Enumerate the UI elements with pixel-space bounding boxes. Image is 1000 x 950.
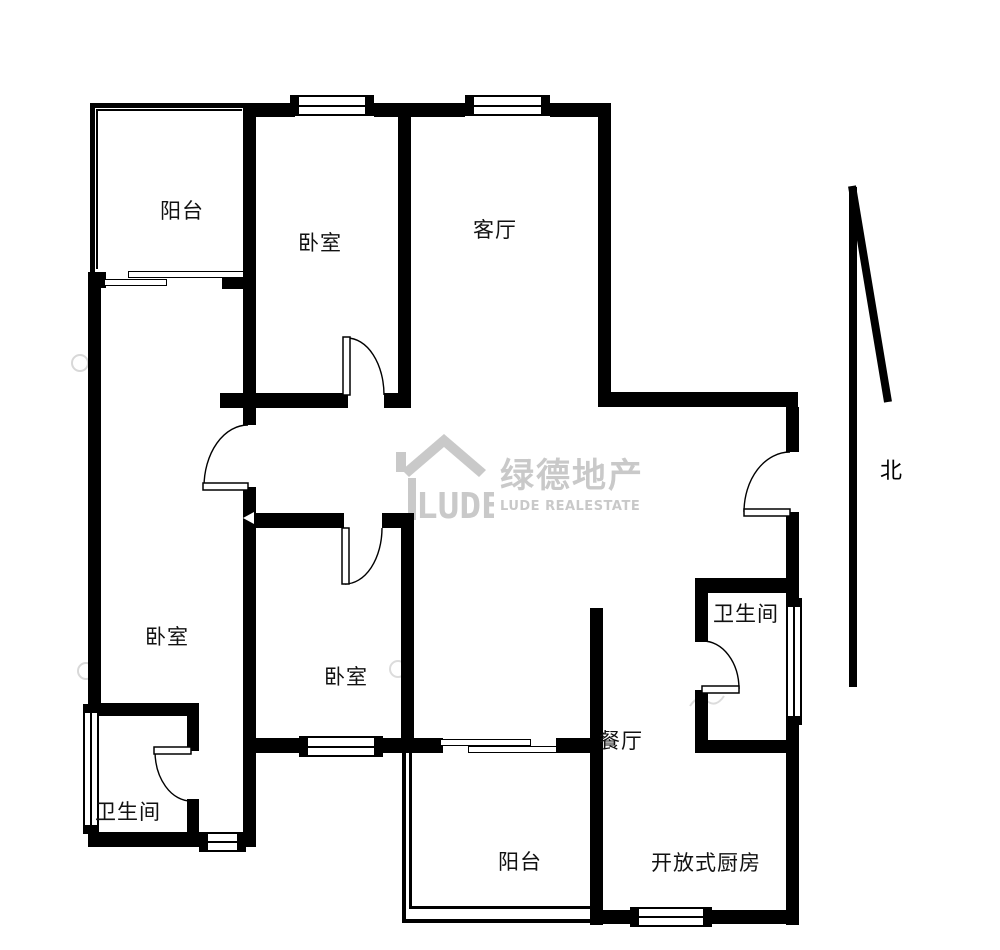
wall-segment xyxy=(380,738,443,753)
wall-segment xyxy=(88,703,199,716)
balcony-railing xyxy=(90,103,248,108)
wall-segment xyxy=(384,393,409,408)
north-arrow-icon xyxy=(852,186,888,687)
door-swing xyxy=(343,337,384,395)
wall-segment xyxy=(88,272,101,705)
wall-segment xyxy=(243,288,256,425)
wall-segment xyxy=(187,799,199,834)
house-logo-icon: LUDE xyxy=(394,430,494,525)
wall-segment xyxy=(187,703,199,751)
room-label-open-kitchen: 开放式厨房 xyxy=(651,847,761,877)
wall-segment xyxy=(709,910,799,924)
watermark-logo: LUDE 绿德地产 LUDE REALESTATE xyxy=(394,430,644,525)
watermark-company-en: LUDE REALESTATE xyxy=(500,499,644,514)
sliding-door xyxy=(440,739,531,746)
window xyxy=(786,598,802,725)
room-label-bathroom-right: 卫生间 xyxy=(713,598,779,628)
room-label-bathroom-left: 卫生间 xyxy=(95,796,161,826)
room-label-dining-room: 餐厅 xyxy=(599,725,643,755)
entry-door-swing xyxy=(744,452,790,516)
wall-segment xyxy=(243,513,256,847)
door-swing xyxy=(342,528,382,584)
wall-segment xyxy=(398,115,411,408)
room-label-bedroom-middle: 卧室 xyxy=(324,661,368,691)
wall-segment xyxy=(598,103,611,399)
wall-segment xyxy=(220,393,348,408)
wall-segment xyxy=(590,608,603,925)
balcony-railing-inner xyxy=(409,752,412,908)
window xyxy=(290,95,374,116)
watermark-text-block: 绿德地产 LUDE REALESTATE xyxy=(500,430,644,514)
watermark-logo-text: LUDE xyxy=(416,486,494,525)
window xyxy=(199,832,246,852)
wall-segment xyxy=(695,578,799,593)
room-label-balcony-bottom: 阳台 xyxy=(498,846,542,876)
watermark-circle xyxy=(72,355,88,371)
wall-segment xyxy=(401,513,414,753)
wall-segment xyxy=(253,513,344,528)
wall-segment xyxy=(243,103,256,288)
wall-segment xyxy=(786,407,799,452)
window xyxy=(465,95,550,116)
floor-plan: LUDE 绿德地产 LUDE REALESTATE xyxy=(0,0,1000,950)
room-label-living-room: 客厅 xyxy=(473,214,517,244)
watermark-company-cn: 绿德地产 xyxy=(500,458,644,495)
window xyxy=(630,907,712,927)
room-label-bedroom-top: 卧室 xyxy=(298,227,342,257)
room-label-balcony-top: 阳台 xyxy=(160,195,204,225)
balcony-railing-inner xyxy=(96,109,98,269)
balcony-railing xyxy=(402,919,603,923)
balcony-railing xyxy=(90,103,95,274)
door-swing xyxy=(702,641,739,693)
door-swing xyxy=(203,425,248,490)
wall-segment xyxy=(243,832,256,847)
wall-segment xyxy=(598,392,798,407)
wall-segment xyxy=(695,593,708,642)
wall-segment xyxy=(253,738,301,753)
sliding-door xyxy=(128,271,248,278)
balcony-railing xyxy=(402,752,406,923)
balcony-railing-inner xyxy=(96,109,242,111)
north-label: 北 xyxy=(880,453,902,485)
wall-segment xyxy=(374,103,465,117)
wall-segment xyxy=(786,723,799,925)
sliding-door xyxy=(104,279,167,286)
wall-segment xyxy=(243,487,256,513)
wall-segment xyxy=(695,740,799,753)
wall-segment xyxy=(88,832,201,847)
balcony-railing-inner xyxy=(409,906,603,909)
room-label-bedroom-left: 卧室 xyxy=(145,621,189,651)
door-swing xyxy=(154,747,191,801)
window xyxy=(299,736,383,757)
